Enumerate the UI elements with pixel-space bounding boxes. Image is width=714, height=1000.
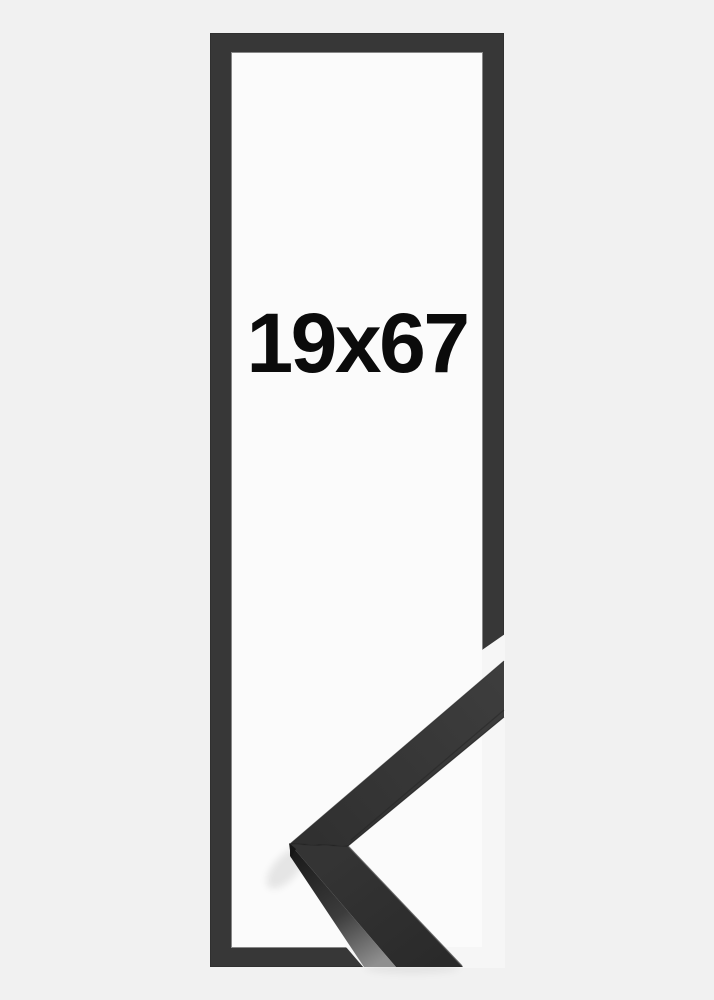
size-label: 19x67 — [210, 301, 504, 385]
product-image: 19x67 — [0, 0, 714, 1000]
frame-graphic — [0, 0, 714, 1000]
